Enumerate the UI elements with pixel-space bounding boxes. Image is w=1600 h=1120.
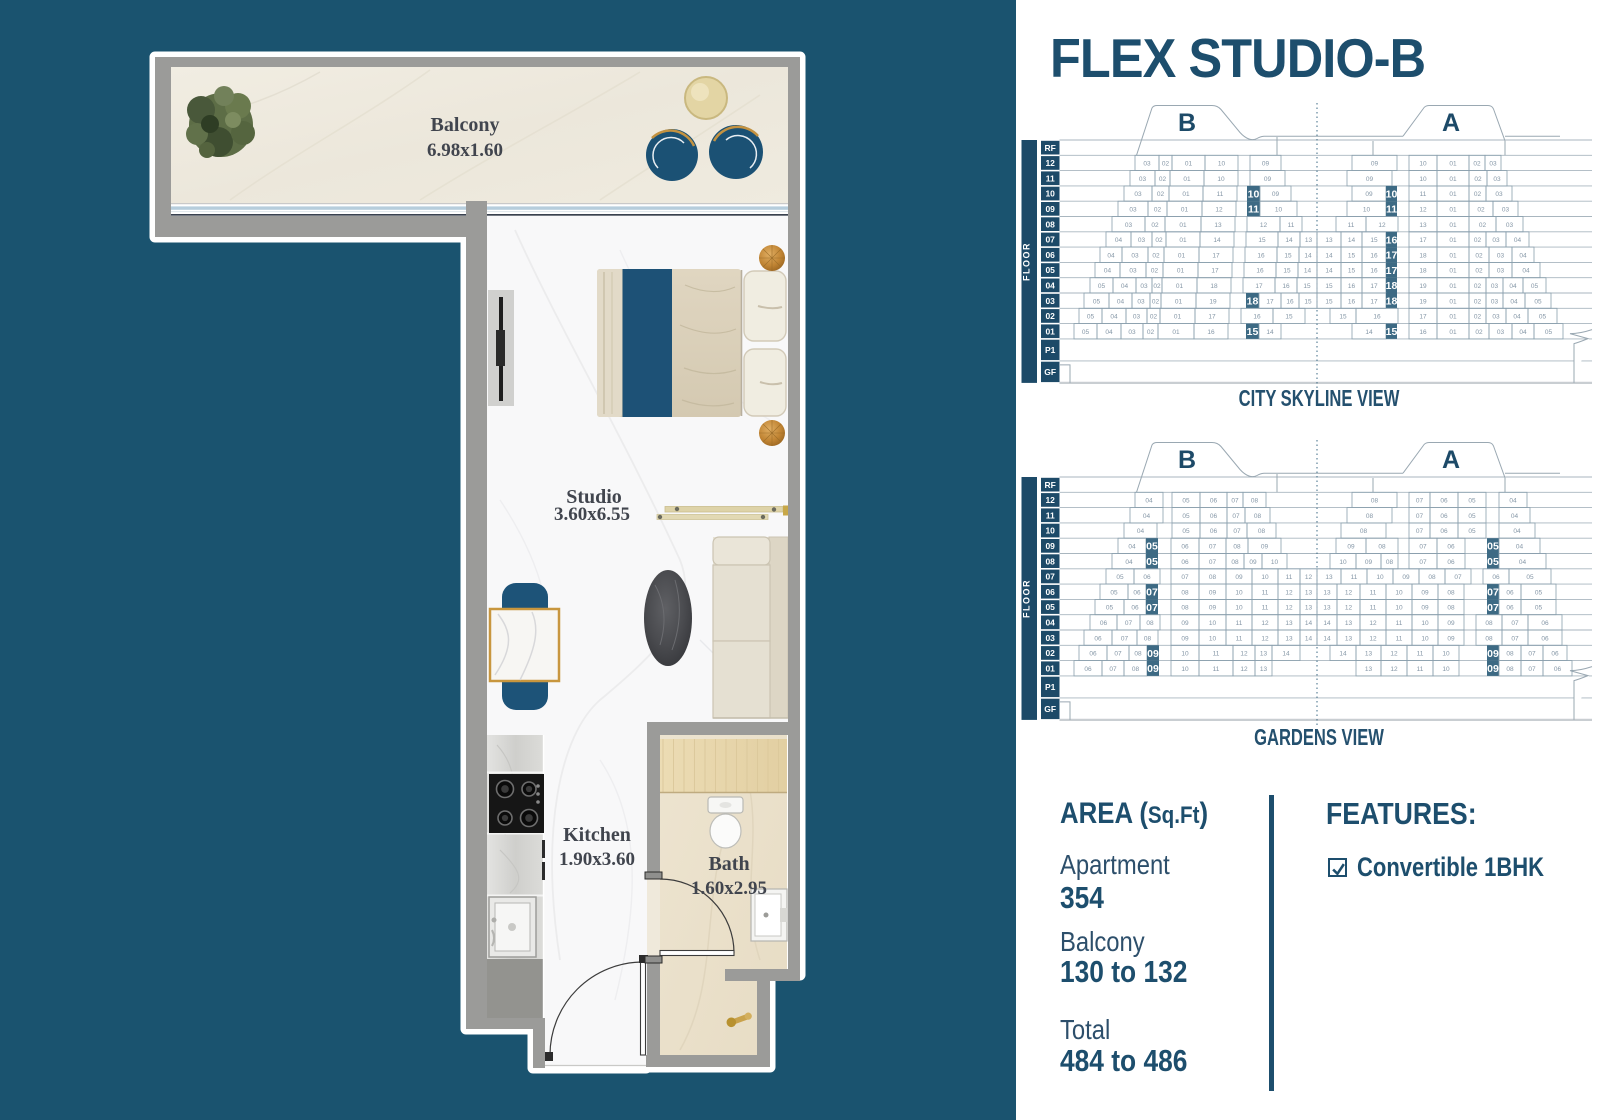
svg-text:Balcony: Balcony — [431, 114, 500, 136]
svg-text:6.98x1.60: 6.98x1.60 — [427, 140, 503, 161]
svg-text:3.60x6.55: 3.60x6.55 — [554, 504, 630, 525]
svg-text:1.60x2.95: 1.60x2.95 — [691, 878, 767, 899]
svg-text:1.90x3.60: 1.90x3.60 — [559, 849, 635, 870]
svg-text:Kitchen: Kitchen — [563, 824, 631, 846]
svg-text:Bath: Bath — [708, 853, 749, 875]
